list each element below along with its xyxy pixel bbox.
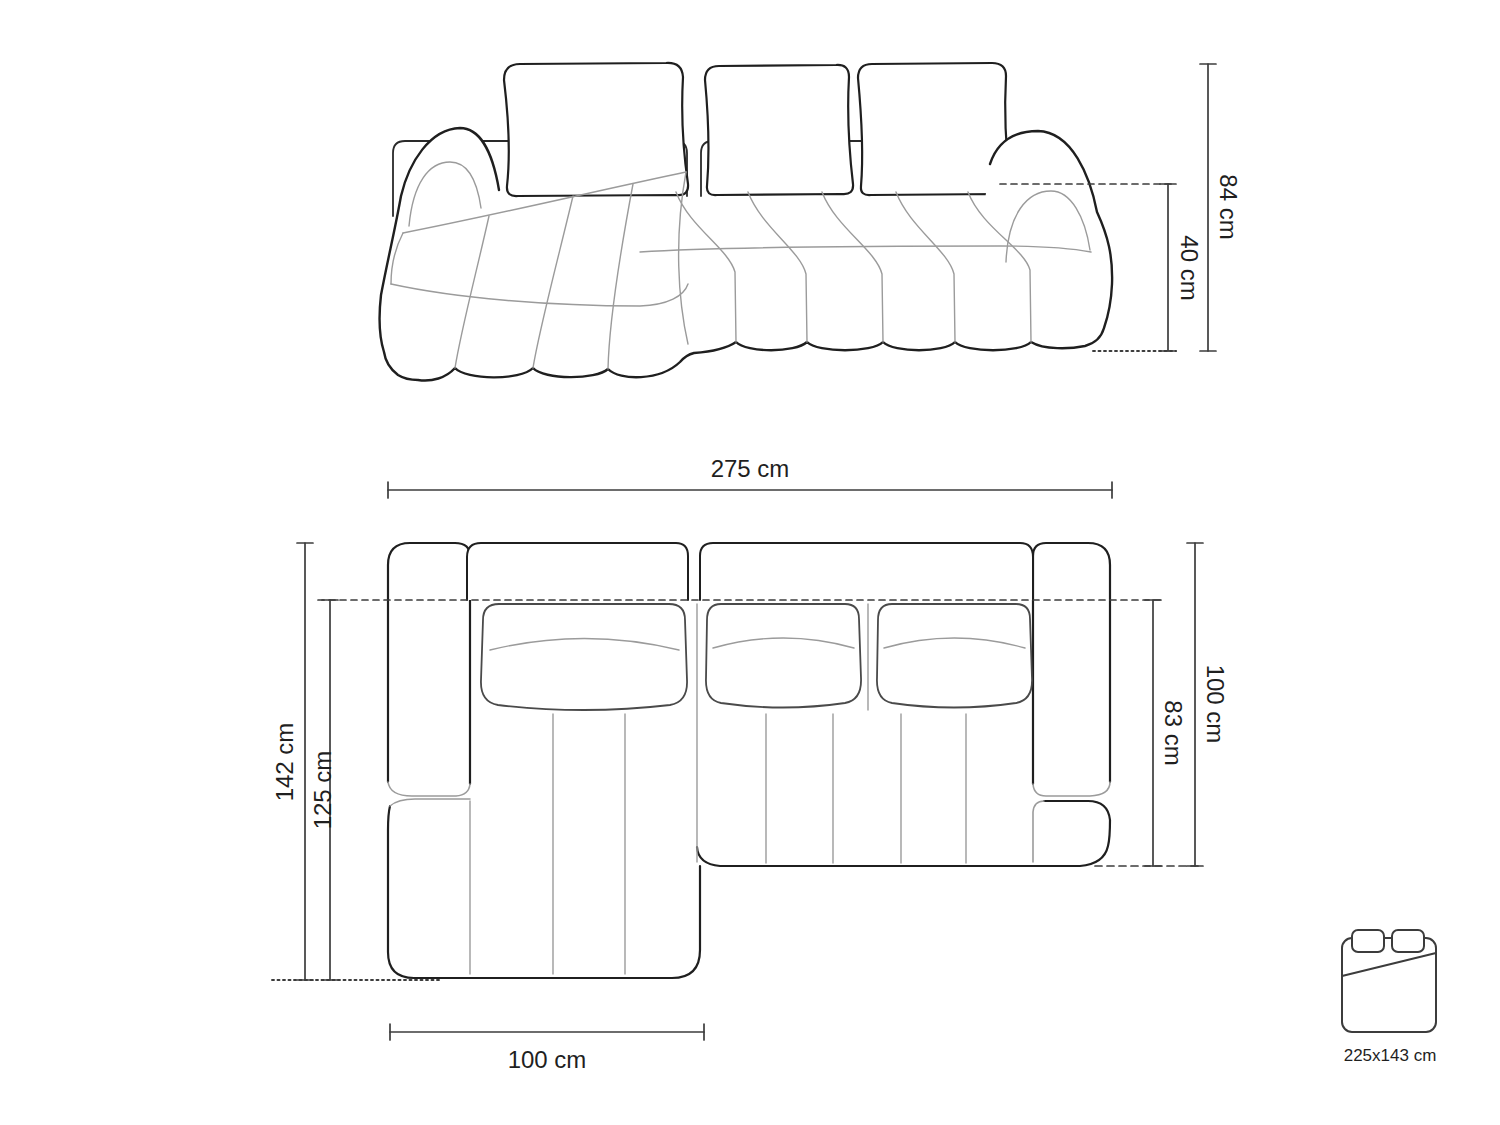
top-back-cushion-left [481, 604, 687, 710]
top-dimension-line-side-depth [1187, 543, 1203, 866]
top-dimension-line-chaise-width [390, 1024, 704, 1040]
top-back-cushion-center [706, 604, 861, 708]
bed-pillow-right-icon [1392, 930, 1424, 952]
top-dimension-label-side-depth: 100 cm [1202, 665, 1229, 744]
top-back-cushions [481, 604, 1032, 710]
top-right-armrest-front-seam [1033, 801, 1044, 862]
top-dimension-label-chaise-depth: 125 cm [309, 751, 336, 830]
front-dimension-line-seat-height [1160, 184, 1176, 351]
top-left-armrest-bottom [388, 782, 470, 796]
top-backrest-right-fill [700, 543, 1033, 600]
front-dimension-label-seat-height: 40 cm [1176, 235, 1203, 300]
top-dimension-label-total-depth: 142 cm [271, 723, 298, 802]
top-view-drawing: 275 cm 142 cm 125 cm 83 cm 100 cm 100 cm [271, 455, 1228, 1073]
top-dimension-label-total-width: 275 cm [711, 455, 790, 482]
top-dimension-label-seat-depth: 83 cm [1160, 700, 1187, 765]
sleeping-area: 225x143 cm [1342, 930, 1436, 1065]
sleeping-area-size-label: 225x143 cm [1344, 1046, 1437, 1065]
front-view-drawing: 84 cm 40 cm [380, 63, 1242, 381]
front-dimension-line-total-height [1200, 64, 1216, 351]
bed-icon [1342, 930, 1436, 1032]
top-dimension-line-seat-depth [1145, 600, 1161, 866]
bed-pillow-left-icon [1352, 930, 1384, 952]
front-pillow-left [504, 63, 688, 196]
front-pillow-center [705, 65, 853, 195]
top-backrest-left-fill [467, 543, 688, 600]
front-dimension-label-total-height: 84 cm [1215, 174, 1242, 239]
sofa-dimension-diagram: 84 cm 40 cm [0, 0, 1500, 1125]
top-right-armrest [1033, 543, 1110, 784]
front-pillow-right [858, 63, 1010, 195]
top-left-armrest [388, 543, 470, 784]
top-back-cushion-right [877, 604, 1032, 708]
top-dimension-label-chaise-width: 100 cm [508, 1046, 587, 1073]
top-dimension-line-total-width [388, 482, 1112, 498]
top-right-armrest-bottom [1033, 782, 1110, 796]
diagram-canvas: 84 cm 40 cm [0, 0, 1500, 1125]
top-chaise-fill [388, 799, 700, 978]
